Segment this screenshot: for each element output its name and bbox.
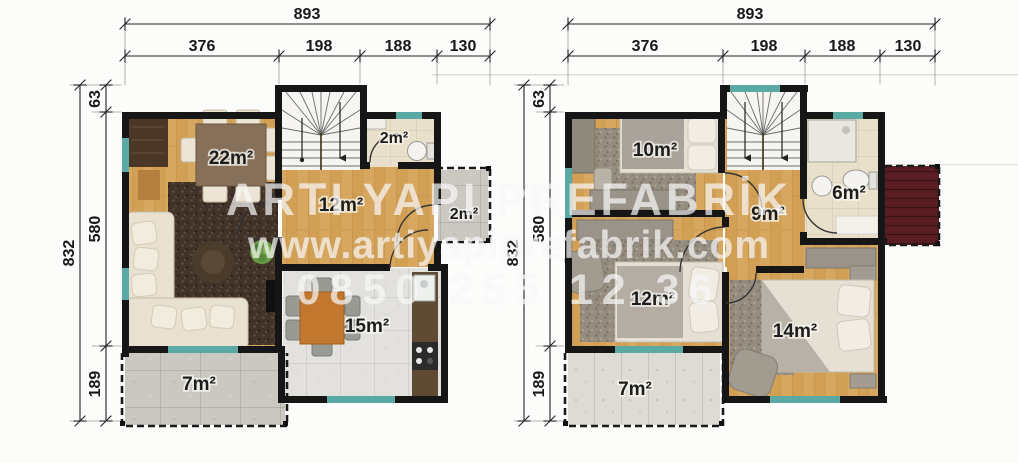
room-label-bedroom3: 14m²	[773, 321, 817, 342]
dim-width-seg: 188	[385, 38, 412, 55]
window	[615, 346, 683, 353]
room-label-bathroom: 6m²	[832, 183, 866, 204]
dim-height-seg: 580	[531, 216, 548, 243]
porch-floor	[438, 170, 488, 240]
dim-height-total: 832	[505, 240, 522, 267]
window	[396, 112, 422, 119]
scan-line-artifact	[432, 74, 1018, 75]
dim-height-seg: 580	[87, 216, 104, 243]
ground-floor-plan: 893 376 198 188 130 832 63 580 189	[61, 6, 495, 426]
stove	[412, 342, 438, 370]
dim-height-seg: 189	[87, 371, 104, 398]
dim-width-total: 893	[294, 6, 321, 23]
room-label-kitchen: 15m²	[345, 316, 389, 337]
window	[730, 85, 780, 92]
dresser	[590, 190, 678, 210]
room-label-living: 22m²	[209, 148, 253, 169]
wardrobe	[569, 117, 595, 173]
window	[565, 168, 572, 218]
dim-width-seg: 198	[751, 38, 778, 55]
window	[168, 346, 238, 353]
tv-unit	[266, 280, 276, 312]
room-label-porch: 2m²	[450, 206, 478, 223]
floor-plan-drawing: 893 376 198 188 130 832 63 580 189	[0, 0, 1018, 463]
room-label-hall: 12m²	[319, 195, 363, 216]
room-label-terrace: 7m²	[182, 374, 216, 395]
room-label-hall: 9m²	[751, 204, 785, 225]
scan-line-artifact	[887, 164, 1018, 165]
wardrobe	[806, 248, 876, 268]
plant	[250, 240, 274, 264]
side-table	[138, 170, 160, 200]
window	[122, 138, 129, 172]
window	[833, 112, 863, 119]
room-label-bedroom2: 12m²	[631, 289, 675, 310]
window	[770, 396, 840, 403]
dim-width-seg: 188	[829, 38, 856, 55]
dim-height-seg: 63	[531, 90, 548, 108]
room-label-balcony: 7m²	[618, 379, 652, 400]
kitchen-counter	[412, 272, 438, 396]
dim-height-total: 832	[61, 240, 78, 267]
dim-width-seg: 130	[450, 38, 477, 55]
floor-plan-scan: 893 376 198 188 130 832 63 580 189	[0, 0, 1018, 463]
room-label-wc: 2m²	[380, 130, 408, 147]
dim-width-total: 893	[737, 6, 764, 23]
room-label-bedroom1: 10m²	[633, 140, 677, 161]
cabinet	[128, 117, 168, 167]
upper-floor-plan: 893 376 198 188 130 832 63 580 189	[505, 6, 940, 426]
dim-width-seg: 376	[632, 38, 659, 55]
dim-height-seg: 63	[87, 90, 104, 108]
window	[327, 396, 395, 403]
deck-floor	[885, 166, 939, 245]
dresser	[577, 220, 673, 240]
dim-width-seg: 198	[306, 38, 333, 55]
dim-height-seg: 189	[531, 371, 548, 398]
window	[122, 268, 129, 300]
dim-width-seg: 376	[189, 38, 216, 55]
dim-width-seg: 130	[895, 38, 922, 55]
chair	[594, 168, 612, 190]
